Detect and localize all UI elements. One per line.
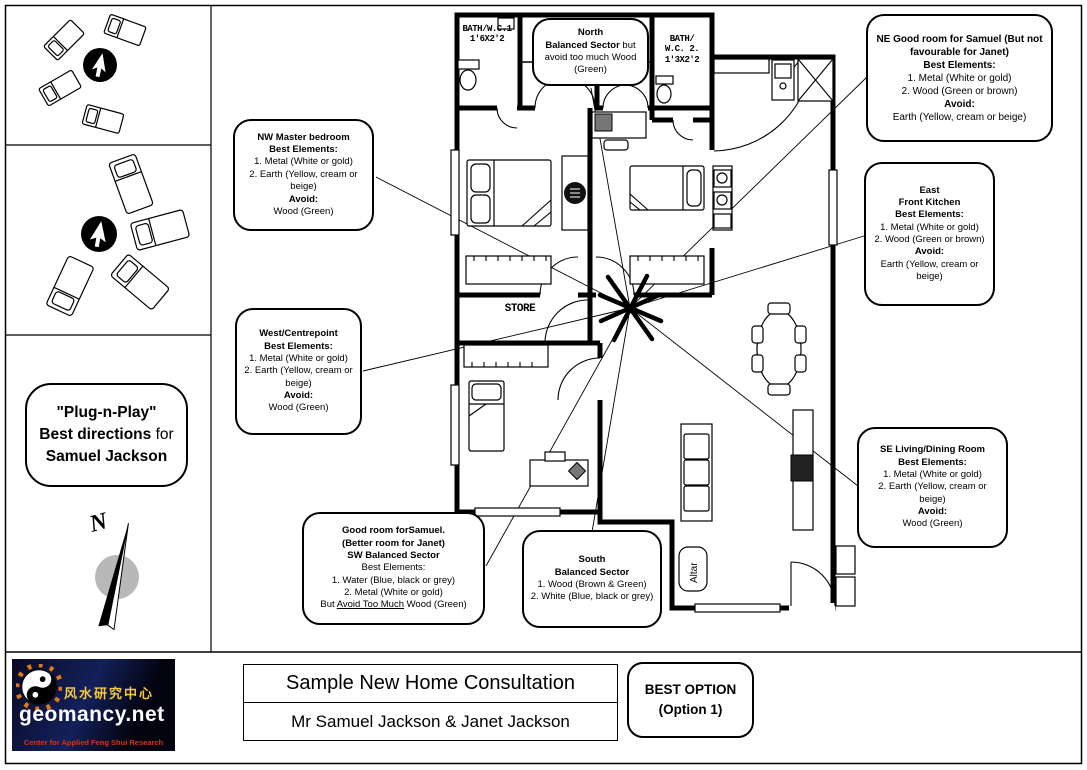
callout-line: Best Elements: — [310, 562, 477, 574]
bath1-label-line2: 1'6X2'2 — [456, 34, 518, 44]
bedroom2-furniture — [592, 112, 704, 284]
title-block: Sample New Home Consultation Mr Samuel J… — [243, 664, 618, 741]
callout-line: Wood (Green) — [865, 518, 1000, 530]
callout-line: 1. Metal (White or gold) — [872, 222, 987, 234]
bath2-label: BATH/ W.C. 2. 1'3X2'2 — [654, 34, 710, 65]
callout-line: Avoid: — [241, 194, 366, 206]
consultation-title: Sample New Home Consultation — [244, 665, 617, 703]
callout-line: SW Balanced Sector — [310, 550, 477, 562]
callout-sw: Good room forSamuel. (Better room for Ja… — [302, 512, 485, 625]
callout-line: But Avoid Too Much Wood (Green) — [310, 599, 477, 611]
callout-line: Avoid: — [874, 98, 1045, 111]
callout-line: East — [872, 185, 987, 197]
callout-line: 1. Wood (Brown & Green) — [530, 579, 654, 591]
callout-line: 2. Wood (Green or brown) — [872, 234, 987, 246]
bedroom3-furniture — [464, 345, 588, 486]
altar-label: Altar — [689, 562, 700, 583]
callout-east: East Front Kitchen Best Elements: 1. Met… — [864, 162, 995, 306]
callout-ne: NE Good room for Samuel (But not favoura… — [866, 14, 1053, 142]
callout-se: SE Living/Dining Room Best Elements: 1. … — [857, 427, 1008, 548]
callout-line: 1. Metal (White or gold) — [865, 469, 1000, 481]
callout-line: Avoid: — [865, 506, 1000, 518]
callout-line: (Better room for Janet) — [310, 538, 477, 550]
bath2-label-line1: BATH/ — [654, 34, 710, 44]
callout-line: 2. Earth (Yellow, cream or beige) — [865, 481, 1000, 506]
north-compass — [95, 522, 139, 630]
callout-line: 1. Metal (White or gold) — [874, 72, 1045, 85]
callout-line: Best Elements: — [865, 457, 1000, 469]
consultation-sheet: Altar BATH/W.C.1 1'6X2'2 BATH/ W.C. 2. 1… — [0, 0, 1087, 770]
callout-west: West/Centrepoint Best Elements: 1. Metal… — [235, 308, 362, 435]
callout-line: West/Centrepoint — [243, 328, 354, 340]
callout-line: Wood (Green) — [241, 206, 366, 218]
callout-line: Best Elements: — [874, 59, 1045, 72]
callout-line: NE Good room for Samuel (But not favoura… — [874, 33, 1045, 59]
callout-line: Balanced Sector — [530, 567, 654, 579]
store-label: STORE — [492, 303, 548, 316]
callout-line: avoid too much Wood — [540, 52, 641, 64]
callout-line: Best directions for — [33, 424, 180, 446]
living-dining-furniture — [679, 303, 855, 606]
best-option-badge: BEST OPTION (Option 1) — [627, 662, 754, 738]
callout-line: Best Elements: — [872, 209, 987, 221]
callout-line: 2. Metal (White or gold) — [310, 587, 477, 599]
callout-line: 2. White (Blue, black or grey) — [530, 591, 654, 603]
callout-line: Balanced Sector but — [540, 40, 641, 52]
bath2-label-line2: W.C. 2. — [654, 44, 710, 54]
logo-chinese-text: 风水研究中心 — [64, 683, 154, 702]
callout-plug-n-play: "Plug-n-Play" Best directions for Samuel… — [25, 383, 188, 487]
bath1-label: BATH/W.C.1 1'6X2'2 — [456, 24, 518, 45]
master-bedroom-furniture — [466, 156, 588, 284]
callout-south: South Balanced Sector 1. Wood (Brown & G… — [522, 530, 662, 628]
callout-line: Best Elements: — [243, 341, 354, 353]
callout-line: "Plug-n-Play" — [33, 402, 180, 424]
bath2-label-line3: 1'3X2'2 — [654, 55, 710, 65]
callout-line: 2. Earth (Yellow, cream or beige) — [241, 169, 366, 194]
callout-line: (Green) — [540, 64, 641, 76]
callout-nw: NW Master bedroom Best Elements: 1. Meta… — [233, 119, 374, 231]
callout-north: North Balanced Sector but avoid too much… — [532, 18, 649, 86]
callout-line: Avoid: — [243, 390, 354, 402]
callout-line: Best Elements: — [241, 144, 366, 156]
callout-line: 1. Metal (White or gold) — [241, 156, 366, 168]
callout-line: Good room forSamuel. — [310, 525, 477, 537]
best-option-line1: BEST OPTION — [645, 680, 737, 700]
logo-site-text: geomancy.net — [19, 703, 165, 727]
callout-line: 2. Wood (Green or brown) — [874, 85, 1045, 98]
bath1-label-line1: BATH/W.C.1 — [456, 24, 518, 34]
callout-line: Samuel Jackson — [33, 446, 180, 468]
best-option-line2: (Option 1) — [659, 700, 723, 720]
geomancy-logo: 风水研究中心 geomancy.net Center for Applied F… — [12, 659, 175, 751]
callout-line: Earth (Yellow, cream or beige) — [872, 259, 987, 284]
callout-line: 1. Metal (White or gold) — [243, 353, 354, 365]
bed-direction-diagram-1 — [39, 14, 147, 133]
callout-line: Wood (Green) — [243, 402, 354, 414]
kitchen-fixtures — [713, 59, 833, 230]
callout-line: NW Master bedroom — [241, 132, 366, 144]
callout-line: Earth (Yellow, cream or beige) — [874, 111, 1045, 124]
bed-direction-diagram-2 — [46, 154, 190, 317]
logo-tagline: Center for Applied Feng Shui Research — [12, 738, 175, 747]
callout-line: Avoid: — [872, 246, 987, 258]
callout-line: SE Living/Dining Room — [865, 444, 1000, 456]
callout-line: 2. Earth (Yellow, cream or beige) — [243, 365, 354, 390]
callout-line: 1. Water (Blue, black or grey) — [310, 575, 477, 587]
client-names: Mr Samuel Jackson & Janet Jackson — [244, 703, 617, 740]
callout-line: South — [530, 554, 654, 566]
callout-line: Front Kitchen — [872, 197, 987, 209]
centrepoint-star — [600, 276, 661, 340]
callout-line: North — [540, 27, 641, 39]
